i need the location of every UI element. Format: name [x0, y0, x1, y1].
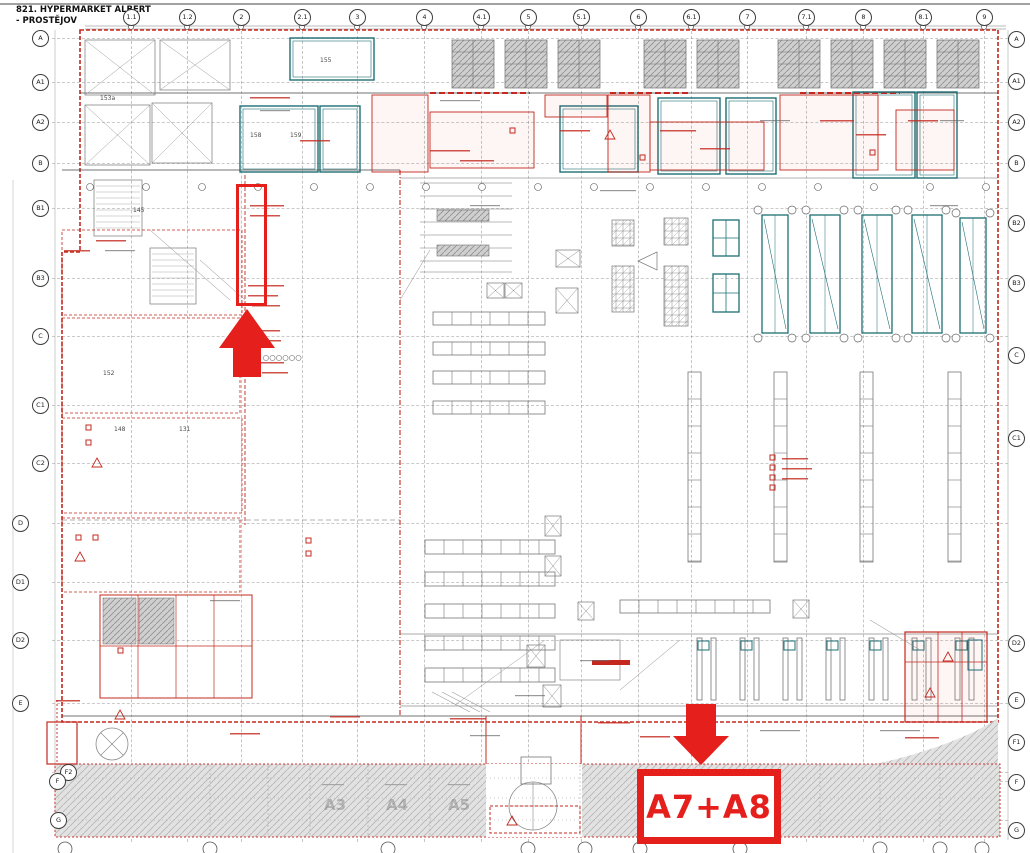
grid-bubble-5.1: 5.1 [573, 9, 590, 26]
up-arrow-icon [215, 305, 281, 380]
grid-bubble-G: G [1008, 822, 1025, 839]
grid-bubble-B1: B1 [32, 200, 49, 217]
zone-label-A4: A4 [386, 796, 408, 814]
room-label-152: 152 [103, 370, 114, 377]
grid-bubble-A2: A2 [32, 114, 49, 131]
grid-bubble-F1: F1 [1008, 734, 1025, 751]
grid-bubble-C2: C2 [32, 455, 49, 472]
grid-bubble-6: 6 [630, 9, 647, 26]
grid-bubble-A1: A1 [32, 74, 49, 91]
grid-bubble-7.1: 7.1 [798, 9, 815, 26]
grid-bubble-D2: D2 [12, 632, 29, 649]
grid-bubble-8: 8 [855, 9, 872, 26]
grid-bubble-3: 3 [349, 9, 366, 26]
grid-bubble-B3: B3 [1008, 275, 1025, 292]
grid-bubble-1.2: 1.2 [179, 9, 196, 26]
grid-bubble-7: 7 [739, 9, 756, 26]
room-label-148: 148 [114, 426, 125, 433]
room-label-131: 131 [179, 426, 190, 433]
grid-bubble-B: B [1008, 155, 1025, 172]
grid-bubble-B: B [32, 155, 49, 172]
highlight-rectangle [236, 184, 267, 306]
floor-plan-canvas: 821. HYPERMARKET ALBERT - PROSTĚJOV A7+A… [0, 0, 1030, 853]
grid-bubble-8.1: 8.1 [915, 9, 932, 26]
grid-bubble-C: C [32, 328, 49, 345]
zone-label-A5: A5 [448, 796, 470, 814]
grid-bubble-A: A [1008, 31, 1025, 48]
grid-bubble-2.1: 2.1 [294, 9, 311, 26]
grid-bubble-E: E [1008, 692, 1025, 709]
grid-bubble-4.1: 4.1 [473, 9, 490, 26]
grid-bubble-6.1: 6.1 [683, 9, 700, 26]
grid-bubble-E: E [12, 695, 29, 712]
grid-bubble-C1: C1 [32, 397, 49, 414]
grid-bubble-F: F [1008, 774, 1025, 791]
room-label-158: 158 [250, 132, 261, 139]
room-label-159: 159 [290, 132, 301, 139]
grid-bubble-D: D [12, 515, 29, 532]
grid-bubble-5: 5 [520, 9, 537, 26]
room-label-155: 155 [320, 57, 331, 64]
grid-bubble-B3: B3 [32, 270, 49, 287]
grid-bubble-C: C [1008, 347, 1025, 364]
zone-callout-box: A7+A8 [637, 769, 781, 844]
grid-bubble-4: 4 [416, 9, 433, 26]
room-label-153a: 153a [100, 95, 115, 102]
grid-bubble-D2: D2 [1008, 635, 1025, 652]
grid-bubble-D1: D1 [12, 574, 29, 591]
grid-bubble-9: 9 [976, 9, 993, 26]
grid-bubble-C1: C1 [1008, 430, 1025, 447]
grid-bubble-F: F [49, 773, 66, 790]
grid-bubble-2: 2 [233, 9, 250, 26]
zone-label-A3: A3 [324, 796, 346, 814]
grid-bubble-A: A [32, 30, 49, 47]
grid-bubble-A1: A1 [1008, 73, 1025, 90]
grid-bubble-A2: A2 [1008, 114, 1025, 131]
zone-callout-label: A7+A8 [646, 788, 772, 826]
floorplan-linework [0, 0, 1030, 853]
grid-bubble-G: G [50, 812, 67, 829]
room-label-145: 145 [133, 207, 144, 214]
grid-bubble-B2: B2 [1008, 215, 1025, 232]
down-arrow-icon [670, 702, 732, 768]
grid-bubble-1.1: 1.1 [123, 9, 140, 26]
